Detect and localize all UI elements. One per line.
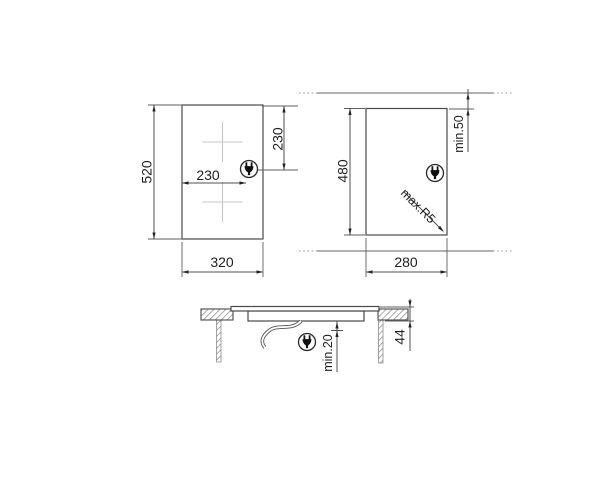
hob-body-section bbox=[248, 311, 364, 321]
power-plug-icon bbox=[299, 334, 316, 351]
hob-installation-drawing: 520 320 230 230 480 bbox=[0, 0, 600, 479]
mains-cable bbox=[262, 321, 301, 348]
technical-drawing-page: 520 320 230 230 480 bbox=[0, 0, 600, 479]
dim-label-44: 44 bbox=[392, 329, 408, 345]
cabinet-side-left bbox=[217, 320, 222, 362]
hob-glass-section bbox=[231, 307, 379, 312]
appliance-top-view: 520 320 230 230 bbox=[139, 105, 299, 277]
section-view: 44 min.20 bbox=[201, 299, 414, 372]
dim-label-cutout-280: 280 bbox=[394, 254, 418, 270]
cabinet-side-right bbox=[379, 320, 384, 363]
dim-label-plug-230-vertical: 230 bbox=[270, 127, 286, 151]
dim-label-plug-230-horizontal: 230 bbox=[196, 167, 220, 183]
worktop-section-left bbox=[201, 309, 233, 320]
dim-label-cutout-480: 480 bbox=[335, 159, 351, 183]
worktop-section-right bbox=[378, 309, 408, 320]
dim-label-min-50: min.50 bbox=[452, 115, 466, 153]
power-plug-icon bbox=[241, 161, 258, 178]
dim-label-width-320: 320 bbox=[210, 254, 234, 270]
dim-label-min-20: min.20 bbox=[321, 334, 335, 372]
worktop-cutout-view: 480 280 min.50 max.R5 bbox=[335, 89, 475, 277]
dim-label-height-520: 520 bbox=[139, 160, 155, 184]
power-plug-icon bbox=[427, 165, 444, 182]
